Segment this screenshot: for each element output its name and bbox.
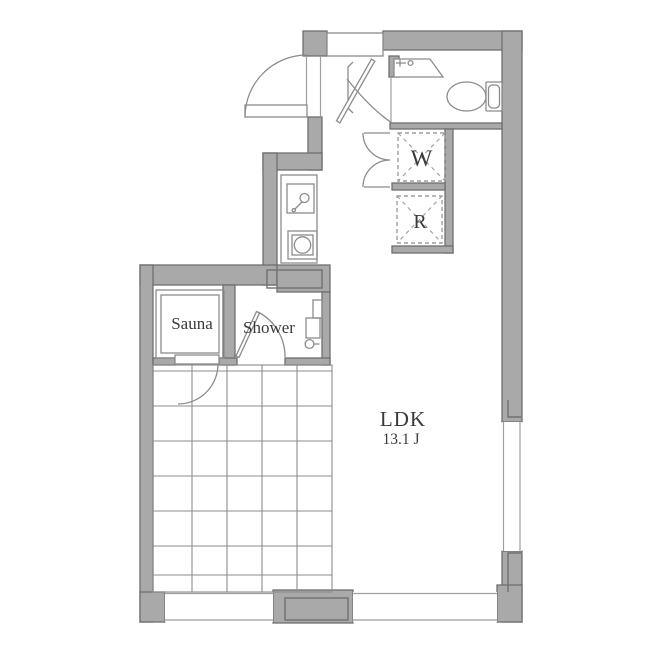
wall-wr-right xyxy=(445,129,453,253)
window-bottom-left xyxy=(165,592,273,622)
toilet-bowl-icon xyxy=(447,82,486,111)
fridge-label: R xyxy=(413,211,427,233)
washer-door-arcs xyxy=(363,133,390,187)
window-bottom-right xyxy=(353,592,497,622)
hall-door-swing-arc xyxy=(347,79,392,123)
wall-sauna-shower-divider xyxy=(223,285,235,365)
window-right xyxy=(502,422,522,551)
ldk-size-label: 13.1 J xyxy=(382,431,419,448)
wall-wr-bottom xyxy=(392,246,453,253)
wall-sauna-top xyxy=(140,265,277,285)
sauna-door-leaf xyxy=(175,355,219,364)
entry-opening-lines xyxy=(307,56,321,117)
shower-unit-upper-icon xyxy=(313,300,322,318)
wall-bottom-left-block xyxy=(140,592,165,622)
sauna-door-swing-arc xyxy=(178,364,218,404)
entry-door-leaf xyxy=(245,105,307,117)
wall-left xyxy=(140,265,153,622)
wall-right-upper xyxy=(502,31,522,422)
shower-label: Shower xyxy=(243,318,295,337)
tiled-floor-grid xyxy=(153,365,332,592)
wall-band-b xyxy=(219,358,237,365)
shower-unit-lower-icon xyxy=(306,318,320,338)
wall-band-a xyxy=(153,358,175,365)
washer-label: W xyxy=(411,146,433,171)
wall-entry-stub xyxy=(303,31,327,56)
wall-bottom-right-block xyxy=(497,585,522,622)
wall-top xyxy=(383,31,522,50)
shower-room xyxy=(305,300,322,348)
ldk-label: LDK xyxy=(380,407,426,431)
kitchen xyxy=(281,175,317,263)
hall-door-leaf xyxy=(337,59,375,123)
wall-band-c xyxy=(285,358,330,365)
grid-vlines xyxy=(192,365,297,592)
floorplan-svg: Sauna Shower W R LDK 13.1 J xyxy=(0,0,650,650)
grid-border xyxy=(153,365,332,592)
wall-shower-right xyxy=(322,292,330,365)
toilet-hand-sink xyxy=(394,59,443,77)
entry-porch xyxy=(327,33,383,56)
toilet-room xyxy=(391,59,502,123)
grid-hlines xyxy=(153,371,332,575)
wall-toilet-bottom xyxy=(390,123,502,129)
sauna-label: Sauna xyxy=(171,314,213,333)
floorplan-page: Sauna Shower W R LDK 13.1 J xyxy=(0,0,650,650)
wall-wr-middle xyxy=(392,183,445,190)
shower-drain-icon xyxy=(305,340,314,349)
